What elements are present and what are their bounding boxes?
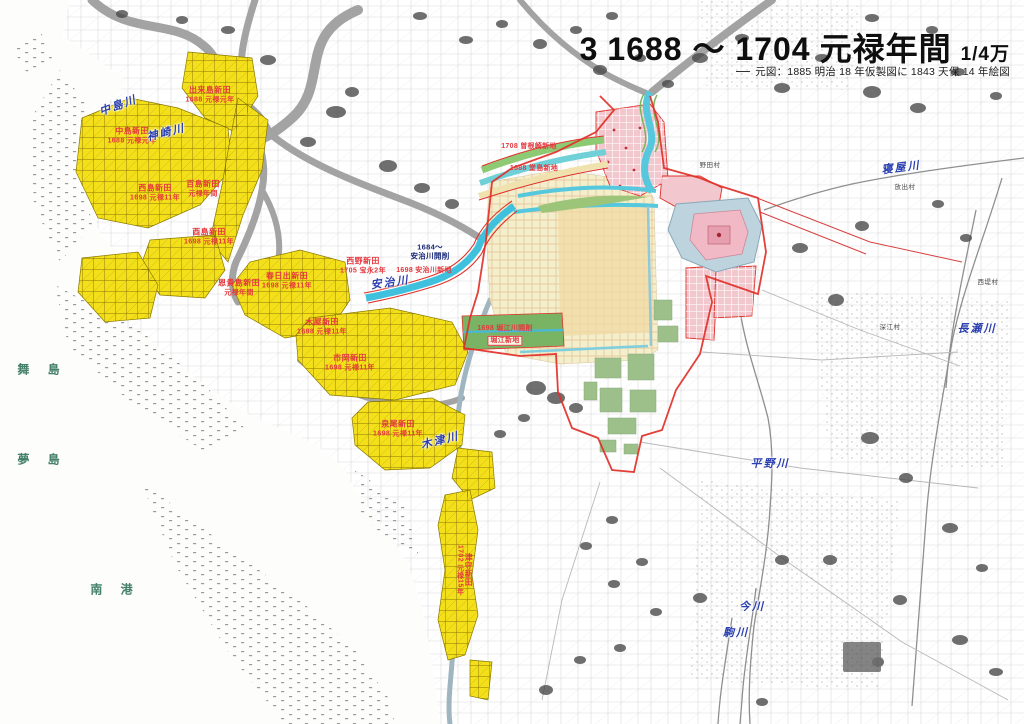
shinden-label: 木屋新田1698 元禄11年 [297, 317, 347, 336]
shinden-label: 西野新田1705 宝永2年 [340, 256, 386, 275]
river-label-kanzaki: 神崎川 [145, 120, 187, 145]
village-label: 深江村 [880, 325, 901, 332]
shinden-label: 出来島新田1688 元禄元年 [185, 85, 234, 104]
shinden-label: 恩貴島新田元禄年間 [218, 278, 260, 297]
sonezaki-shinchi-label: 1708 曽根崎新地 [501, 143, 557, 151]
sea-label-nanko: 南 港 [90, 581, 139, 598]
tick-line [736, 71, 750, 72]
shinden-label: 百島新田元禄年間 [186, 179, 220, 198]
river-label-neya: 寝屋川 [881, 157, 922, 178]
map-scale: 1/4万 [961, 39, 1010, 66]
sheet-number: 3 [580, 31, 599, 68]
horie-excavation-label: 1698 堀江川開削 [477, 325, 533, 333]
sea-label-yumeshima: 夢 島 [17, 451, 66, 468]
label-layer: 3 1688 ～ 1704 元禄年間 1/4万 元図：1885 明治 18 年仮… [0, 0, 1024, 724]
river-label-nakajima: 中島川 [97, 91, 139, 119]
village-label: 野田村 [700, 163, 721, 170]
historical-map-page: 3 1688 ～ 1704 元禄年間 1/4万 元図：1885 明治 18 年仮… [0, 0, 1024, 724]
shinden-label: 市岡新田1698 元禄11年 [325, 353, 375, 372]
river-label-ima: 今川 [739, 598, 765, 614]
shinden-label: 津守新田1702 元禄15年 [456, 545, 472, 595]
village-label: 西堤村 [978, 280, 999, 287]
river-label-kizu: 木津川 [419, 428, 461, 453]
source-note: 元図：1885 明治 18 年仮製図に 1843 天保 14 年絵図 [736, 64, 1010, 79]
shinden-label: 泉尾新田1698 元禄11年 [373, 419, 423, 438]
ajigawa-excavation-label: 1684～ 安治川開削 [411, 243, 450, 262]
river-label-koma: 駒川 [723, 624, 749, 640]
river-label-nagase: 長瀬川 [958, 320, 997, 336]
horie-shinchi-label: 堀江新地 [487, 336, 522, 346]
shinden-label: 西島新田1698 元禄11年 [130, 183, 180, 202]
dojima-shinchi-label: 1688 堂島新地 [510, 165, 558, 173]
river-label-hirano: 平野川 [751, 455, 790, 471]
village-label: 放出村 [895, 185, 916, 192]
shinden-label: 春日出新田1698 元禄11年 [262, 271, 312, 290]
sea-label-maishima: 舞 島 [17, 361, 66, 378]
shinden-label: 酉島新田1698 元禄11年 [184, 227, 234, 246]
